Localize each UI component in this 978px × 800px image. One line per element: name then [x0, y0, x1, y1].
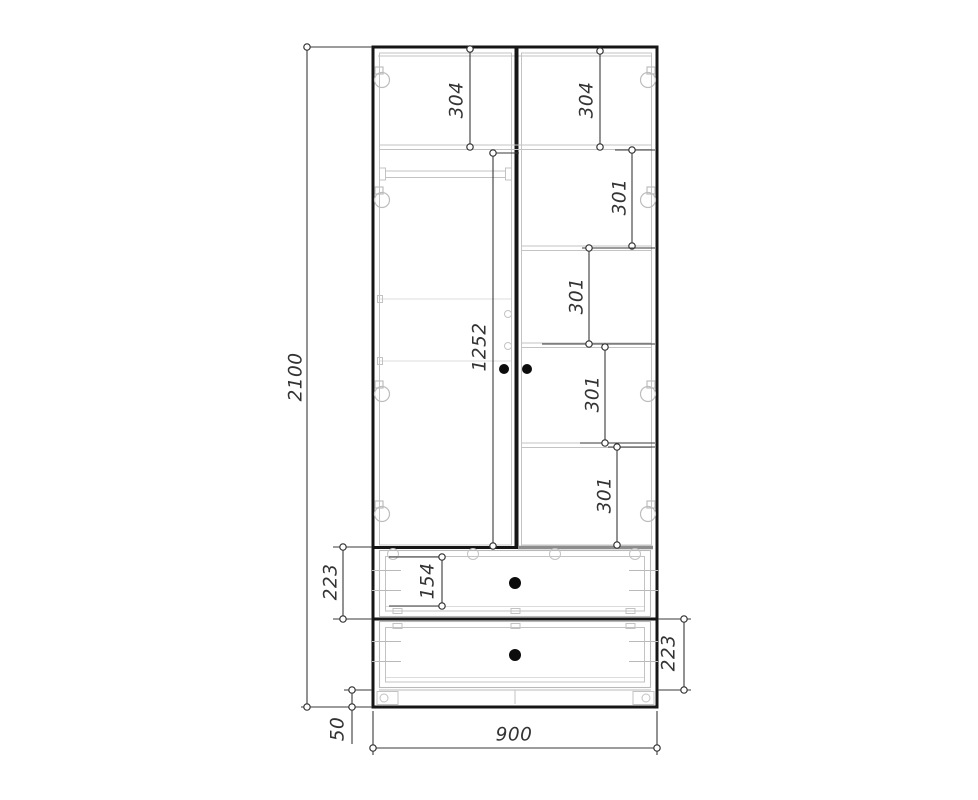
wardrobe-technical-drawing: 2100 304 304 301 301 301 [0, 0, 978, 800]
dimension-plinth: 50 [328, 687, 373, 744]
dimension-drawer-front: 154 [389, 554, 445, 609]
screw-icon [505, 311, 512, 318]
dim-marker [340, 544, 346, 550]
dimension-overall-height: 2100 [286, 44, 373, 710]
dim-marker [349, 704, 355, 710]
right-door-handle [522, 364, 532, 374]
dim-marker [614, 444, 620, 450]
dim-label-top-left: 304 [447, 82, 468, 119]
dim-marker [467, 46, 473, 52]
drawing-canvas: 2100 304 304 301 301 301 [0, 0, 978, 800]
dim-marker [370, 745, 376, 751]
dim-marker [681, 616, 687, 622]
dim-label-door-height: 1252 [470, 322, 491, 371]
dim-marker [602, 344, 608, 350]
dimension-shelf-1: 301 [610, 147, 656, 249]
foot-icon [380, 694, 388, 702]
dim-marker [304, 704, 310, 710]
plinth [377, 690, 654, 705]
hinge-icon [641, 73, 656, 88]
hinge-icon [375, 193, 390, 208]
dim-label-shelf-3: 301 [583, 376, 604, 413]
foot-icon [642, 694, 650, 702]
dimension-drawer-2: 223 [658, 616, 691, 693]
dim-marker [349, 687, 355, 693]
drawer-1-handle [509, 577, 521, 589]
dim-label-shelf-4: 301 [595, 477, 616, 514]
dim-marker [597, 48, 603, 54]
rod-bracket [380, 168, 386, 180]
hinge-icon [375, 387, 390, 402]
dim-marker [629, 147, 635, 153]
hinge-icon [641, 193, 656, 208]
dimension-overall-width: 900 [370, 711, 660, 755]
dim-marker [490, 150, 496, 156]
dim-label-drawer-front: 154 [418, 563, 439, 600]
dim-marker [614, 542, 620, 548]
dim-label-shelf-1: 301 [610, 179, 631, 216]
dim-label-drawer-2: 223 [659, 635, 680, 672]
dimension-top-right: 304 [577, 48, 604, 150]
screw-icon [505, 343, 512, 350]
dim-label-overall-width: 900 [496, 725, 533, 746]
dim-marker [467, 144, 473, 150]
dim-marker [654, 745, 660, 751]
foot [633, 692, 654, 705]
dimension-shelf-3: 301 [580, 344, 655, 446]
dim-label-drawer-1: 223 [321, 564, 342, 601]
dimension-shelf-2: 301 [542, 245, 655, 347]
dim-marker [586, 245, 592, 251]
dim-marker [439, 554, 445, 560]
drawer-2-handle [509, 649, 521, 661]
dim-marker [681, 687, 687, 693]
dim-label-plinth: 50 [328, 717, 349, 742]
dimension-shelf-4: 301 [595, 444, 656, 548]
dim-marker [304, 44, 310, 50]
hinge-icon [375, 507, 390, 522]
drawer-2 [372, 622, 658, 688]
hinge-icon [641, 507, 656, 522]
dim-marker [439, 603, 445, 609]
dim-marker [586, 341, 592, 347]
dim-label-overall-height: 2100 [286, 352, 307, 401]
hinge-icon [641, 387, 656, 402]
dimension-drawer-1: 223 [321, 544, 373, 622]
rod-bracket [506, 168, 512, 180]
left-door-handle [499, 364, 509, 374]
dim-marker [602, 440, 608, 446]
dim-marker [597, 144, 603, 150]
dim-label-top-right: 304 [577, 82, 598, 119]
dim-marker [490, 543, 496, 549]
hinge-icon [375, 73, 390, 88]
dim-label-shelf-2: 301 [567, 278, 588, 315]
dim-marker [340, 616, 346, 622]
dimension-top-left: 304 [447, 46, 474, 150]
